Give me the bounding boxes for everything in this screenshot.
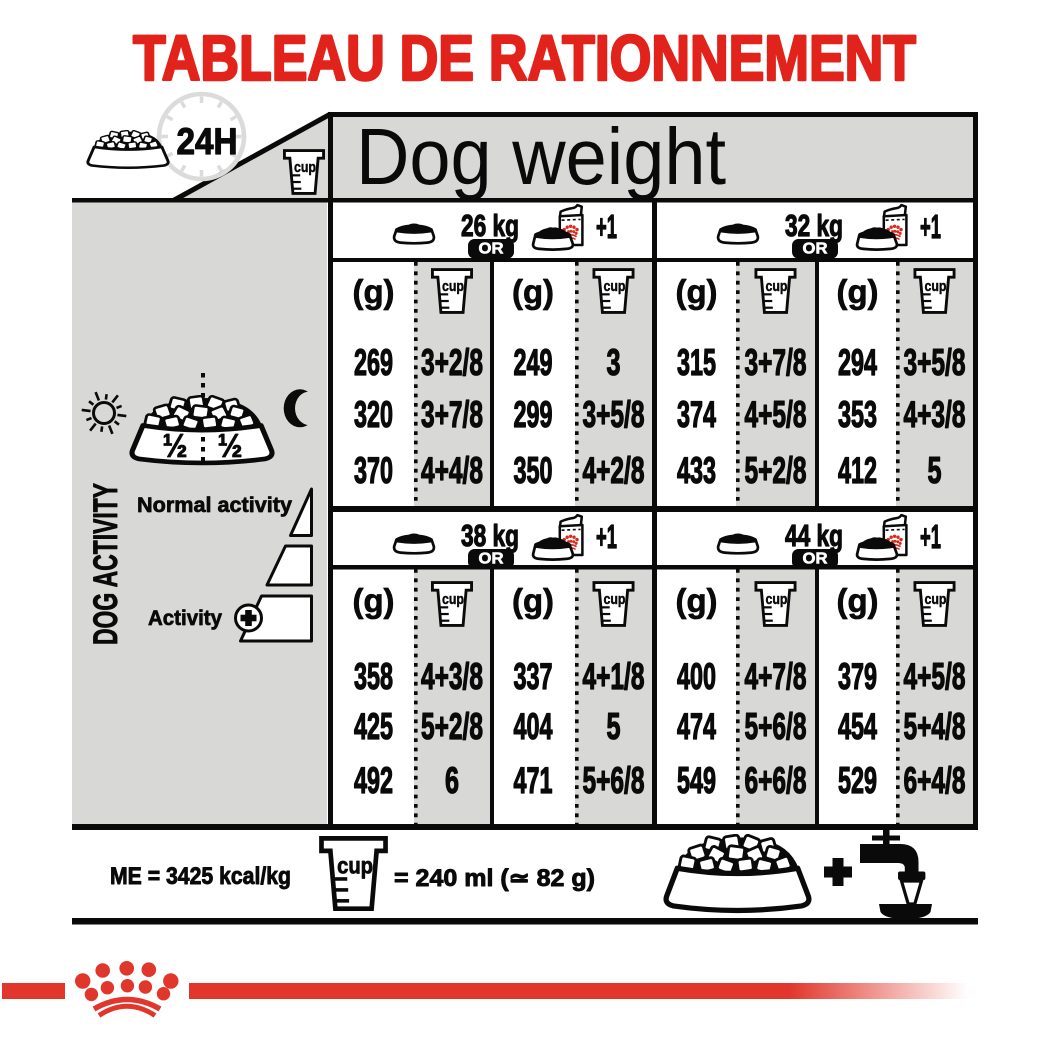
- svg-text:249: 249: [514, 342, 553, 383]
- svg-text:320: 320: [354, 394, 393, 435]
- svg-text:24H: 24H: [177, 121, 238, 162]
- svg-text:= 240 ml (≃ 82 g): = 240 ml (≃ 82 g): [394, 865, 595, 892]
- svg-text:(g): (g): [837, 273, 879, 310]
- svg-text:44 kg: 44 kg: [785, 518, 843, 553]
- svg-text:+1: +1: [920, 208, 941, 245]
- svg-text:Normal activity: Normal activity: [137, 494, 292, 517]
- svg-text:433: 433: [677, 450, 716, 491]
- svg-text:294: 294: [838, 342, 877, 383]
- svg-text:4+4/8: 4+4/8: [421, 450, 483, 491]
- svg-text:454: 454: [838, 706, 877, 747]
- svg-text:OR: OR: [479, 551, 504, 568]
- svg-text:+1: +1: [596, 208, 617, 245]
- svg-text:549: 549: [677, 760, 716, 801]
- svg-text:26 kg: 26 kg: [461, 208, 519, 243]
- svg-text:5+6/8: 5+6/8: [745, 706, 807, 747]
- svg-text:471: 471: [514, 760, 553, 801]
- svg-text:4+2/8: 4+2/8: [583, 450, 645, 491]
- svg-text:370: 370: [354, 450, 393, 491]
- svg-text:½: ½: [163, 427, 188, 464]
- svg-text:DOG ACTIVITY: DOG ACTIVITY: [87, 483, 125, 645]
- svg-text:Dog weight: Dog weight: [356, 112, 726, 201]
- svg-text:400: 400: [677, 656, 716, 697]
- svg-text:3: 3: [607, 342, 621, 383]
- svg-text:5+6/8: 5+6/8: [583, 760, 645, 801]
- svg-text:+1: +1: [920, 518, 941, 555]
- svg-text:4+5/8: 4+5/8: [904, 656, 966, 697]
- svg-text:4+3/8: 4+3/8: [904, 394, 966, 435]
- svg-text:337: 337: [514, 656, 553, 697]
- svg-text:(g): (g): [512, 582, 554, 619]
- svg-text:4+1/8: 4+1/8: [583, 656, 645, 697]
- svg-text:TABLEAU DE RATIONNEMENT: TABLEAU DE RATIONNEMENT: [133, 22, 916, 94]
- svg-text:6+4/8: 6+4/8: [904, 760, 966, 801]
- svg-text:374: 374: [677, 394, 716, 435]
- svg-text:32 kg: 32 kg: [785, 208, 843, 243]
- svg-text:(g): (g): [512, 273, 554, 310]
- svg-text:OR: OR: [803, 241, 828, 258]
- svg-text:4+7/8: 4+7/8: [745, 656, 807, 697]
- svg-text:(g): (g): [353, 582, 395, 619]
- svg-text:5+4/8: 5+4/8: [904, 706, 966, 747]
- svg-text:5+2/8: 5+2/8: [745, 450, 807, 491]
- svg-text:6+6/8: 6+6/8: [745, 760, 807, 801]
- svg-text:269: 269: [354, 342, 393, 383]
- svg-text:529: 529: [838, 760, 877, 801]
- svg-text:+1: +1: [596, 518, 617, 555]
- svg-text:315: 315: [677, 342, 716, 383]
- svg-text:3+5/8: 3+5/8: [583, 394, 645, 435]
- svg-text:(g): (g): [837, 582, 879, 619]
- svg-text:3+2/8: 3+2/8: [421, 342, 483, 383]
- svg-text:3+7/8: 3+7/8: [745, 342, 807, 383]
- svg-text:425: 425: [354, 706, 393, 747]
- svg-text:3+7/8: 3+7/8: [421, 394, 483, 435]
- svg-text:½: ½: [218, 427, 243, 464]
- svg-text:474: 474: [677, 706, 716, 747]
- svg-text:5: 5: [607, 706, 621, 747]
- svg-text:ME = 3425 kcal/kg: ME = 3425 kcal/kg: [110, 863, 291, 890]
- svg-text:OR: OR: [479, 241, 504, 258]
- svg-text:358: 358: [354, 656, 393, 697]
- svg-text:5: 5: [928, 450, 942, 491]
- svg-text:299: 299: [514, 394, 553, 435]
- svg-text:350: 350: [514, 450, 553, 491]
- svg-text:38 kg: 38 kg: [461, 518, 519, 553]
- svg-text:OR: OR: [803, 551, 828, 568]
- svg-text:5+2/8: 5+2/8: [421, 706, 483, 747]
- svg-text:4+5/8: 4+5/8: [745, 394, 807, 435]
- svg-text:412: 412: [838, 450, 877, 491]
- svg-text:492: 492: [354, 760, 393, 801]
- svg-text:404: 404: [514, 706, 553, 747]
- svg-text:6: 6: [445, 760, 459, 801]
- svg-text:(g): (g): [676, 273, 718, 310]
- svg-text:4+3/8: 4+3/8: [421, 656, 483, 697]
- svg-text:3+5/8: 3+5/8: [904, 342, 966, 383]
- svg-text:353: 353: [838, 394, 877, 435]
- svg-text:(g): (g): [676, 582, 718, 619]
- svg-text:(g): (g): [353, 273, 395, 310]
- svg-text:379: 379: [838, 656, 877, 697]
- svg-text:Activity: Activity: [148, 607, 222, 630]
